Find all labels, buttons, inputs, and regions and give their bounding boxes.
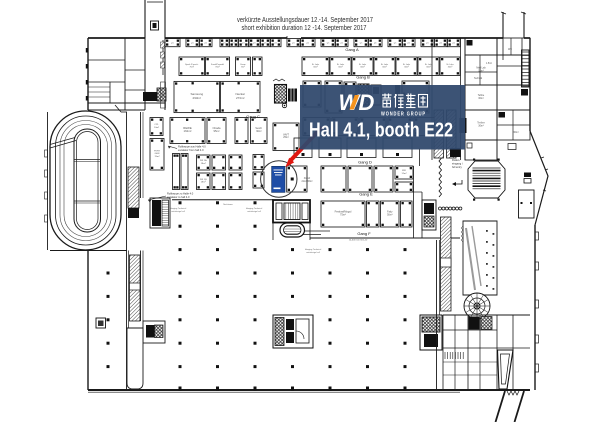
- svg-text:1.5m²: 1.5m²: [486, 62, 492, 65]
- svg-text:75m²: 75m²: [340, 213, 346, 217]
- svg-text:Gang A: Gang A: [345, 47, 359, 52]
- svg-text:escalator to hall 4.0: escalator to hall 4.0: [167, 195, 190, 199]
- svg-text:30m²: 30m²: [256, 130, 262, 133]
- svg-text:18m²: 18m²: [201, 181, 206, 184]
- svg-text:full entry: full entry: [452, 165, 463, 169]
- svg-text:162m²: 162m²: [184, 129, 192, 133]
- svg-text:76m²: 76m²: [215, 66, 220, 69]
- svg-text:30m²: 30m²: [313, 66, 318, 69]
- svg-text:short exhibition duration 12 -: short exhibition duration 12 -14. Septem…: [242, 23, 367, 32]
- svg-text:273m²: 273m²: [236, 96, 245, 100]
- svg-text:Gang D: Gang D: [358, 160, 372, 165]
- svg-text:30m²: 30m²: [448, 66, 453, 69]
- svg-text:anti-design hall: anti-design hall: [171, 210, 185, 213]
- svg-text:WONDER GROUP: WONDER GROUP: [381, 112, 426, 118]
- svg-text:Gang E: Gang E: [359, 192, 373, 197]
- svg-text:30m²: 30m²: [382, 66, 387, 69]
- svg-text:WF 1B: WF 1B: [200, 179, 207, 181]
- svg-text:WF 1A: WF 1A: [200, 159, 207, 162]
- svg-text:Hanging Technical: Hanging Technical: [305, 249, 322, 251]
- svg-text:Hanging Technical: Hanging Technical: [170, 208, 187, 210]
- svg-text:30m²: 30m²: [478, 124, 484, 127]
- svg-text:Rollen-: Rollen-: [452, 158, 460, 162]
- svg-text:21m² 36m²: 21m² 36m²: [301, 180, 312, 183]
- svg-text:10m²: 10m²: [154, 126, 159, 129]
- svg-text:70m²: 70m²: [155, 155, 160, 158]
- svg-text:75m²: 75m²: [190, 66, 195, 69]
- svg-text:34/GF: 34/GF: [304, 178, 311, 180]
- svg-text:8m²: 8m²: [241, 66, 245, 69]
- svg-text:50m²: 50m²: [387, 213, 393, 216]
- svg-text:30m²: 30m²: [338, 66, 343, 69]
- svg-text:escalator from hall 4.0: escalator from hall 4.0: [178, 148, 204, 152]
- svg-text:eingang /: eingang /: [452, 162, 463, 166]
- svg-text:95m²: 95m²: [214, 129, 220, 133]
- svg-text:Nachtzone: Nachtzone: [223, 203, 233, 206]
- svg-text:Gang F: Gang F: [357, 231, 371, 236]
- svg-text:25m²: 25m²: [283, 136, 289, 139]
- svg-text:18m²: 18m²: [201, 162, 206, 165]
- svg-text:30m²: 30m²: [478, 97, 484, 100]
- svg-text:WC: WC: [508, 48, 512, 51]
- svg-text:anti-design hall: anti-design hall: [247, 210, 261, 213]
- svg-text:Rolltreppe aus Halle 4.0: Rolltreppe aus Halle 4.0: [178, 145, 206, 149]
- svg-text:Rolltreppe zu Halle 4.0: Rolltreppe zu Halle 4.0: [167, 192, 194, 196]
- svg-text:30m²: 30m²: [513, 131, 519, 134]
- svg-text:D: D: [359, 90, 375, 115]
- svg-text:anti-design hall: anti-design hall: [306, 251, 320, 254]
- svg-text:30m²: 30m²: [360, 66, 365, 69]
- svg-text:14-600 mm 601-20: 14-600 mm 601-20: [349, 240, 368, 242]
- svg-text:Hanging Technical: Hanging Technical: [246, 208, 263, 210]
- svg-text:Gang C: Gang C: [246, 114, 260, 119]
- svg-text:293m²: 293m²: [193, 96, 202, 100]
- svg-text:GEN: GEN: [155, 153, 160, 155]
- svg-text:30m²: 30m²: [426, 66, 431, 69]
- svg-text:Hall 4.1, booth E22: Hall 4.1, booth E22: [309, 120, 453, 142]
- svg-text:12m²: 12m²: [402, 172, 407, 175]
- svg-text:30m²: 30m²: [404, 66, 409, 69]
- svg-text:Technik: Technik: [474, 77, 483, 80]
- svg-text:Gang B: Gang B: [356, 75, 370, 80]
